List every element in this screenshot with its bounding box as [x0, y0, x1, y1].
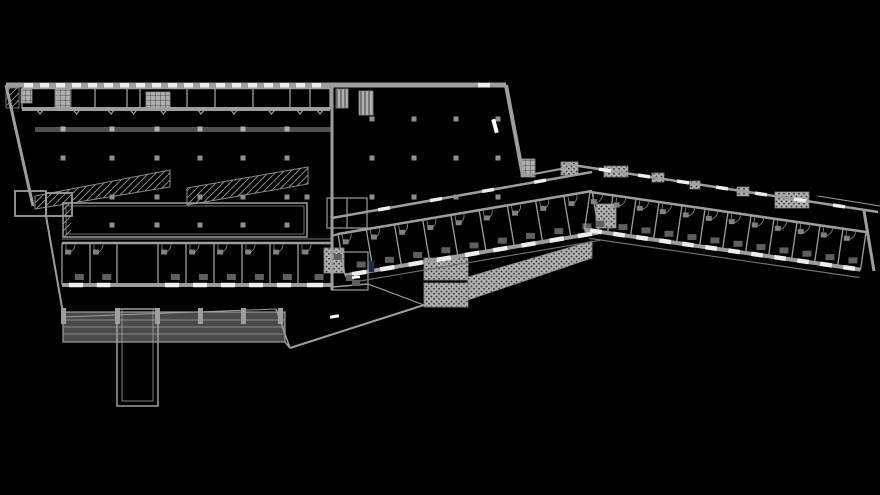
- south-row-rooms: [62, 243, 332, 285]
- room-window: [352, 272, 366, 274]
- column: [454, 117, 459, 122]
- canopy-window: [378, 208, 390, 210]
- room-furniture: [802, 251, 811, 257]
- room-furniture: [779, 247, 788, 253]
- column: [412, 156, 417, 161]
- facade-window: [280, 83, 289, 88]
- column: [110, 127, 115, 132]
- room-furniture: [641, 227, 650, 233]
- room-window: [521, 243, 535, 245]
- facade-window: [56, 83, 65, 88]
- facade-window: [248, 83, 257, 88]
- column: [305, 195, 310, 200]
- room-divider: [838, 229, 843, 267]
- room-furniture: [283, 274, 292, 280]
- facade-window: [40, 83, 49, 88]
- room-furniture: [687, 234, 696, 240]
- stair-core: [359, 91, 373, 115]
- stair-core: [424, 283, 468, 307]
- stairs-ramps-layer: [6, 88, 809, 307]
- room-furniture: [102, 274, 111, 280]
- terrace-furniture: [334, 254, 342, 260]
- column: [110, 195, 115, 200]
- room-divider: [746, 215, 751, 253]
- column: [412, 117, 417, 122]
- facade-window: [296, 83, 305, 88]
- structure-outline: [66, 206, 304, 234]
- column: [496, 156, 501, 161]
- column: [155, 195, 160, 200]
- room-divider: [654, 202, 659, 240]
- wall-segment: [506, 85, 523, 176]
- room-window: [613, 234, 625, 236]
- room-divider: [677, 205, 682, 243]
- room-furniture: [595, 221, 604, 227]
- room-window: [705, 247, 717, 249]
- column: [198, 223, 203, 228]
- room-furniture: [227, 274, 236, 280]
- room-window: [550, 238, 564, 240]
- facade-window: [184, 83, 193, 88]
- room-furniture: [255, 274, 264, 280]
- room-furniture: [825, 254, 834, 260]
- column: [61, 156, 66, 161]
- canopy-window: [794, 199, 806, 201]
- canopy-window: [430, 199, 442, 201]
- room-window: [409, 262, 423, 264]
- column: [454, 195, 459, 200]
- elevator-shaft-navy: [369, 261, 374, 272]
- room-furniture: [848, 257, 857, 263]
- room-window: [590, 230, 602, 232]
- room-furniture: [75, 274, 84, 280]
- wall-segment: [368, 284, 424, 305]
- room-divider: [769, 219, 774, 257]
- room-divider: [792, 222, 797, 260]
- floor-plan-stage: [0, 0, 880, 495]
- column: [241, 127, 246, 132]
- room-band-north-wall: [338, 191, 592, 234]
- room-window: [493, 248, 507, 250]
- parking-edge-hatch: [63, 203, 71, 237]
- wall-segment: [332, 284, 368, 287]
- room-divider: [700, 209, 705, 247]
- room-window: [843, 267, 855, 269]
- column: [241, 223, 246, 228]
- column: [110, 223, 115, 228]
- facade-window: [88, 83, 97, 88]
- room-window: [659, 240, 671, 242]
- facade-window: [72, 83, 81, 88]
- facade-window: [104, 83, 113, 88]
- room-furniture: [498, 238, 507, 244]
- structure-outline: [63, 203, 307, 237]
- column: [285, 195, 290, 200]
- facade-window: [478, 83, 490, 88]
- room-furniture: [664, 231, 673, 237]
- column: [496, 195, 501, 200]
- room-furniture: [385, 257, 394, 263]
- column: [155, 223, 160, 228]
- room-window: [774, 257, 786, 259]
- canopy-window: [755, 193, 767, 195]
- column: [110, 156, 115, 161]
- room-furniture: [733, 241, 742, 247]
- room-window: [465, 253, 479, 255]
- room-furniture: [357, 262, 366, 268]
- facade-window: [136, 83, 145, 88]
- column: [241, 195, 246, 200]
- column: [412, 195, 417, 200]
- room-furniture: [413, 252, 422, 258]
- facade-window: [200, 83, 209, 88]
- room-divider: [861, 232, 866, 270]
- room-window: [578, 234, 592, 236]
- balcony-edge: [589, 238, 859, 277]
- canopy-window: [482, 189, 494, 191]
- room-window: [380, 267, 394, 269]
- facade-window: [168, 83, 177, 88]
- canopy-window: [716, 187, 728, 189]
- stair-core: [336, 89, 348, 108]
- ramp-post: [198, 308, 203, 324]
- room-window: [820, 264, 832, 266]
- room-furniture: [554, 228, 563, 234]
- room-window: [682, 244, 694, 246]
- room-furniture: [756, 244, 765, 250]
- column: [198, 156, 203, 161]
- column: [198, 127, 203, 132]
- room-furniture: [710, 237, 719, 243]
- room-divider: [723, 212, 728, 250]
- wall-segment: [290, 305, 424, 348]
- column: [370, 195, 375, 200]
- facade-window: [216, 83, 225, 88]
- room-furniture: [470, 242, 479, 248]
- room-furniture: [441, 247, 450, 253]
- room-window: [797, 260, 809, 262]
- column: [285, 127, 290, 132]
- facade-window: [152, 83, 161, 88]
- canopy-window: [677, 181, 689, 183]
- room-furniture: [315, 274, 324, 280]
- wall-segment: [864, 211, 874, 271]
- room-furniture: [199, 274, 208, 280]
- canopy-window: [638, 175, 650, 177]
- facade-window: [24, 83, 33, 88]
- stair-direction-mark: [330, 314, 339, 319]
- walls-layer: [6, 85, 880, 406]
- room-window: [636, 237, 648, 239]
- room-furniture: [618, 224, 627, 230]
- column: [454, 156, 459, 161]
- facade-window: [120, 83, 129, 88]
- facade-window: [264, 83, 273, 88]
- canopy-window: [833, 205, 845, 207]
- room-window: [437, 257, 451, 259]
- room-furniture: [526, 233, 535, 239]
- column: [198, 195, 203, 200]
- terrace-furniture: [352, 280, 360, 286]
- facade-window: [232, 83, 241, 88]
- column: [61, 127, 66, 132]
- wall-segment: [46, 216, 63, 313]
- room-divider: [815, 225, 820, 263]
- room-divider: [631, 199, 636, 237]
- room-window: [728, 250, 740, 252]
- stair-core: [146, 92, 170, 108]
- facade-window: [312, 83, 321, 88]
- column: [496, 117, 501, 122]
- column: [155, 156, 160, 161]
- floor-plan-svg: [0, 0, 880, 495]
- column: [155, 127, 160, 132]
- column: [370, 156, 375, 161]
- column: [285, 223, 290, 228]
- column: [241, 156, 246, 161]
- column: [285, 156, 290, 161]
- canopy-window: [599, 169, 611, 171]
- room-window: [751, 254, 763, 256]
- canopy-window: [534, 180, 546, 182]
- room-furniture: [171, 274, 180, 280]
- column: [370, 117, 375, 122]
- switchback-ramp: [187, 167, 308, 205]
